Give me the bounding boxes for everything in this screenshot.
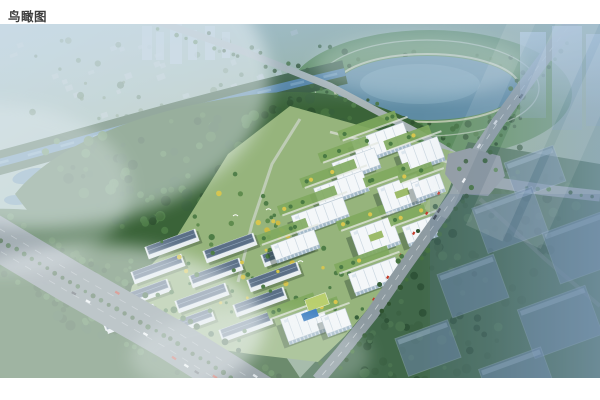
- aerial-rendering-image: [0, 24, 600, 378]
- document-page: 鸟瞰图: [0, 0, 600, 400]
- image-caption: 鸟瞰图: [8, 6, 47, 25]
- rendering-scene: [0, 24, 600, 378]
- tint-bottom-right: [430, 194, 600, 378]
